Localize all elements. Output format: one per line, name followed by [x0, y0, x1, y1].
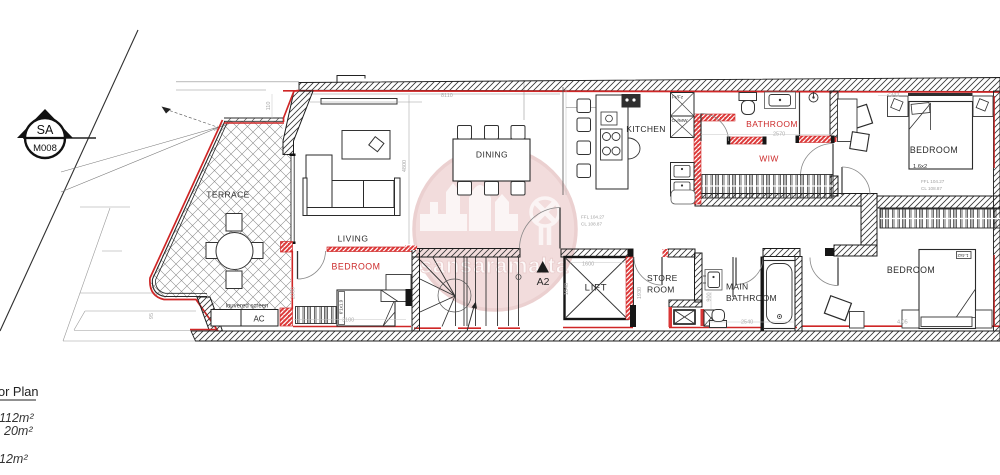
svg-text:BEDROOM: BEDROOM [332, 262, 381, 272]
svg-text:DINING: DINING [476, 150, 508, 160]
svg-text:ROOM: ROOM [647, 285, 675, 295]
svg-text:Ov/MW: Ov/MW [672, 118, 688, 124]
svg-text:BATHROOM: BATHROOM [726, 293, 777, 303]
svg-text:SA: SA [37, 123, 54, 137]
svg-text:2080: 2080 [291, 287, 297, 299]
svg-text:4.05: 4.05 [897, 320, 908, 326]
svg-text:M008: M008 [33, 143, 57, 154]
svg-text:1930: 1930 [637, 287, 643, 299]
svg-text:LIVING: LIVING [338, 234, 369, 244]
svg-text:1640: 1640 [564, 283, 570, 295]
svg-text:FFL 104.27: FFL 104.27 [581, 215, 605, 220]
svg-text:or Plan: or Plan [0, 384, 39, 399]
svg-text:BEDROOM: BEDROOM [887, 265, 935, 275]
svg-text:louvered screen: louvered screen [226, 304, 269, 310]
svg-text:110: 110 [266, 102, 272, 111]
svg-text:112m²: 112m² [0, 411, 34, 425]
svg-text:FFL 104.27: FFL 104.27 [921, 179, 945, 184]
svg-text:95: 95 [149, 313, 155, 319]
svg-text:BATHROOM: BATHROOM [746, 119, 798, 129]
svg-text:3100: 3100 [342, 318, 354, 324]
svg-text:8110: 8110 [441, 93, 453, 99]
svg-text:LIFT: LIFT [585, 283, 608, 294]
svg-text:KITCHEN: KITCHEN [626, 124, 665, 134]
svg-text:4800: 4800 [402, 160, 408, 172]
svg-text:1.4x2: 1.4x2 [957, 253, 969, 258]
svg-text:6'1x1.9: 6'1x1.9 [339, 299, 344, 314]
svg-text:CL 108.87: CL 108.87 [921, 186, 942, 191]
svg-text:900: 900 [707, 292, 713, 301]
svg-text:12m²: 12m² [0, 452, 28, 466]
svg-text:CL 108.87: CL 108.87 [581, 222, 602, 227]
svg-text:Fr/Fz: Fr/Fz [672, 95, 684, 101]
svg-text:2540: 2540 [741, 320, 753, 326]
svg-text:A2: A2 [537, 276, 550, 288]
svg-text:WIW: WIW [759, 154, 779, 164]
svg-text:STORE: STORE [647, 273, 678, 283]
svg-text:1.6x2: 1.6x2 [913, 164, 927, 170]
svg-text:MAIN: MAIN [726, 282, 748, 292]
svg-text:20m²: 20m² [3, 424, 33, 438]
svg-text:AC: AC [253, 315, 264, 324]
svg-text:BEDROOM: BEDROOM [910, 145, 958, 155]
svg-text:TERRACE: TERRACE [206, 190, 249, 200]
